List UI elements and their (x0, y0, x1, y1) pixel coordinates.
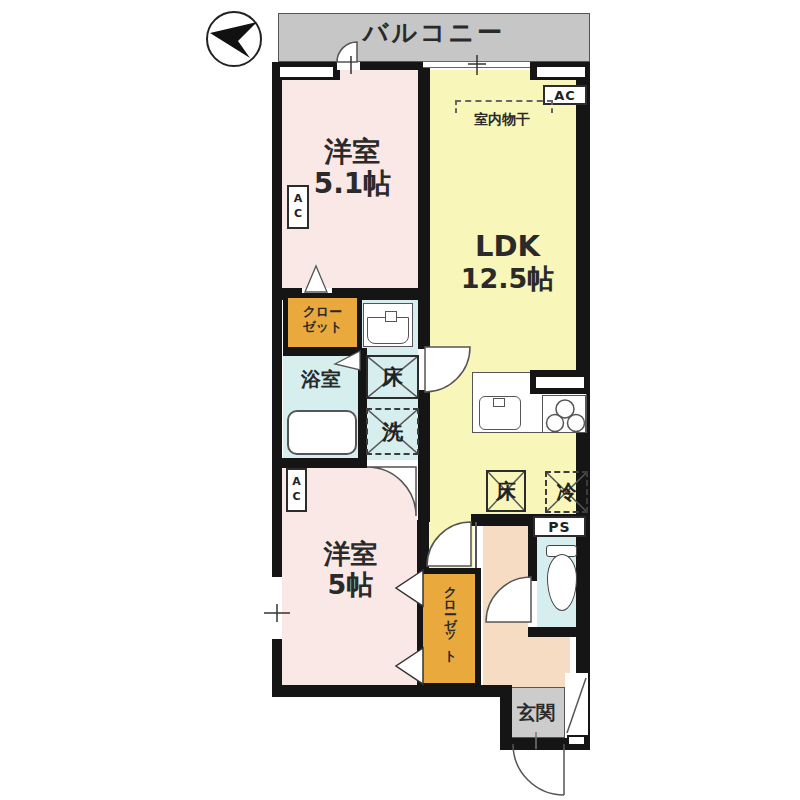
indoor-drying-label: 室内物干 (442, 111, 562, 127)
balcony-label: バルコニー (278, 19, 590, 48)
shutter-slot-right (537, 67, 585, 77)
stove-burners-icon (543, 396, 587, 434)
closet1-label: クロー ゼット (288, 305, 357, 335)
wall-toilet-bottom (528, 627, 590, 637)
floor-hatch-ldk-label: 床 (488, 472, 524, 510)
bedroom1-name: 洋室 (290, 136, 415, 168)
ldk-size: 12.5帖 (445, 263, 570, 294)
wall-bedroom2-top (272, 458, 367, 468)
closet2-label: クローゼット (442, 576, 457, 684)
bedroom2-window (272, 577, 282, 639)
refrigerator-space: 冷 (545, 471, 588, 513)
bedroom2-label: 洋室 5帖 (288, 538, 413, 600)
floor-hatch-washroom-label: 床 (368, 357, 417, 397)
entrance-label: 玄関 (507, 702, 565, 724)
refrigerator-label: 冷 (547, 473, 586, 511)
ldk-notch-area (429, 514, 473, 572)
bedroom2-size: 5帖 (288, 569, 413, 600)
balcony-door-gap (337, 62, 360, 70)
bedroom2-ac-label: AC (290, 475, 303, 505)
wall-washroom-ldk-lower (418, 390, 430, 522)
wall-top-mid-bar (358, 62, 424, 70)
hallway-lower-area (483, 635, 570, 687)
bedroom2-ac-box: AC (286, 468, 307, 512)
shutter-slot-left (280, 67, 333, 77)
wall-bedroom1-ldk (418, 62, 430, 300)
ldk-label: LDK 12.5帖 (445, 230, 570, 294)
floor-hatch-washroom: 床 (366, 355, 419, 399)
bedroom1-size: 5.1帖 (290, 168, 415, 200)
entrance-door-slot (565, 673, 588, 735)
washing-machine-label: 洗 (368, 410, 417, 453)
bedroom1-label: 洋室 5.1帖 (290, 136, 415, 200)
bedroom2-name: 洋室 (288, 538, 413, 569)
hall-notch-divider (475, 522, 477, 574)
north-arrow-icon (207, 12, 261, 66)
ldk-ac-label: AC (554, 88, 576, 103)
closet1-label-line2: ゼット (288, 320, 357, 335)
ps-box: PS (533, 516, 586, 537)
kitchen-window-slot (536, 377, 584, 388)
ps-label: PS (548, 519, 570, 535)
floorplan: クロー ゼット クローゼット PS 床 (0, 0, 800, 800)
washing-machine-space: 洗 (366, 408, 419, 455)
kitchen-stove (542, 395, 586, 433)
meter-box (567, 735, 586, 746)
ldk-name: LDK (445, 230, 570, 263)
wall-washroom-ldk-upper (418, 300, 430, 349)
washbasin-faucet (385, 311, 397, 322)
kitchen-faucet (493, 398, 505, 407)
bathroom-label: 浴室 (283, 368, 359, 391)
floor-hatch-ldk: 床 (486, 470, 526, 512)
closet1-label-line1: クロー (288, 305, 357, 320)
ldk-balcony-window (423, 61, 530, 68)
bathtub (287, 410, 357, 455)
